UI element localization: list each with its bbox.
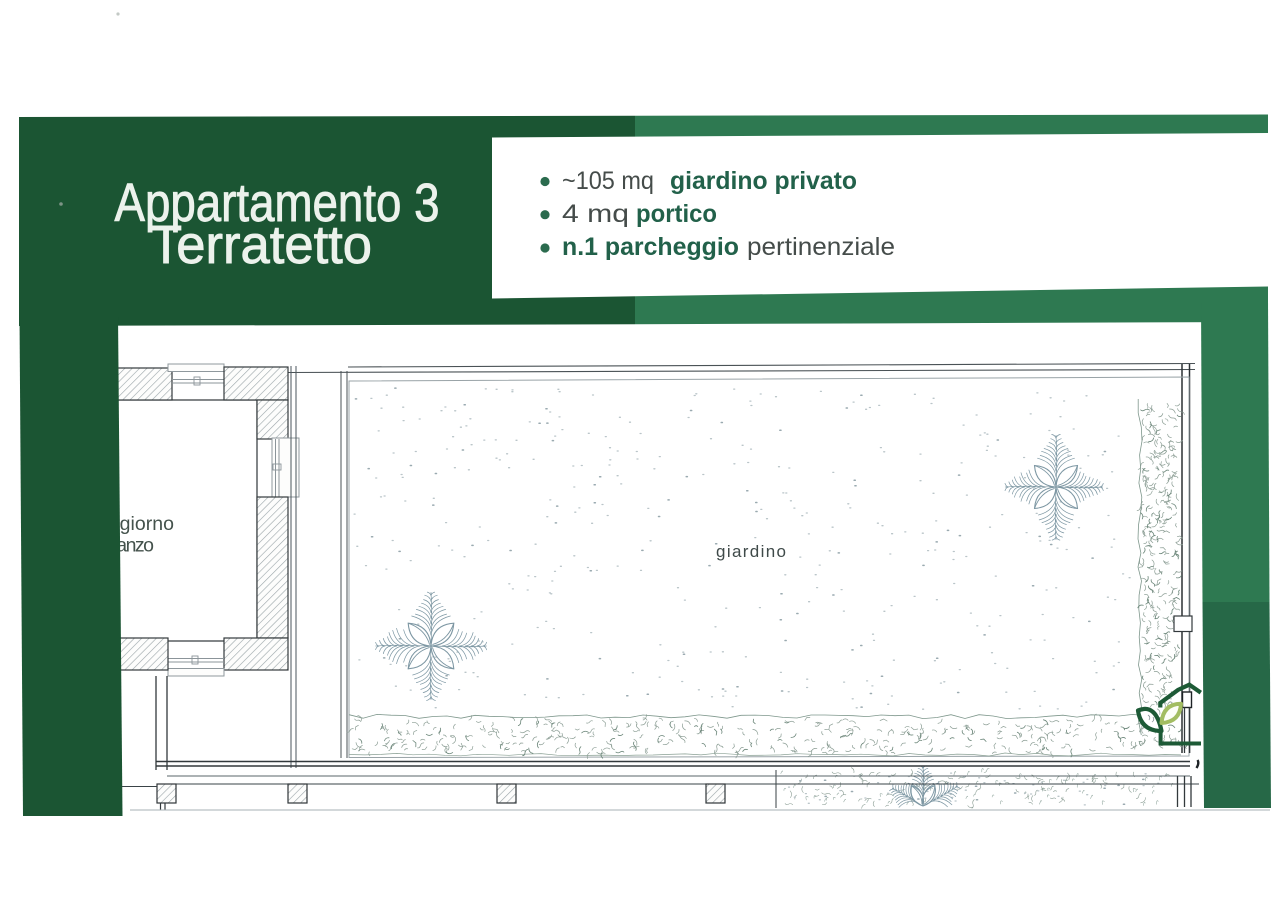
svg-text:n.1 parcheggio: n.1 parcheggio [562,233,739,261]
svg-text:4 mq: 4 mq [562,200,629,228]
svg-text:giardino privato: giardino privato [670,167,857,195]
svg-text:pertinenziale: pertinenziale [747,233,895,261]
svg-text:~105 mq: ~105 mq [562,167,654,195]
svg-text:portico: portico [636,200,717,228]
svg-text:Terratetto: Terratetto [150,215,372,275]
